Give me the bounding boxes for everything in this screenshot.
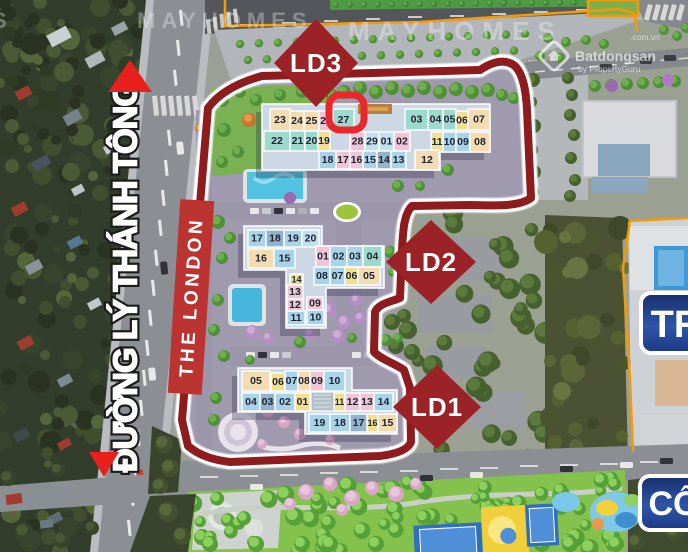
svg-text:03: 03 [411,114,423,126]
svg-text:CỔ: CỔ [649,485,688,523]
svg-text:04: 04 [245,396,257,408]
svg-text:18: 18 [322,154,334,166]
svg-text:LD3: LD3 [290,48,342,78]
svg-text:07: 07 [286,375,298,387]
svg-text:20: 20 [305,233,317,245]
svg-text:03: 03 [262,396,274,408]
svg-text:12: 12 [289,299,301,311]
svg-text:09: 09 [311,375,323,387]
svg-text:17: 17 [353,417,365,429]
svg-text:08: 08 [474,136,486,148]
svg-text:14: 14 [291,275,301,285]
svg-text:by PropertyGuru: by PropertyGuru [578,64,641,74]
svg-text:27: 27 [338,114,350,126]
svg-text:16: 16 [255,253,267,265]
svg-text:14: 14 [378,396,390,408]
svg-text:ĐƯỜNG LÝ THÁNH TÔNG: ĐƯỜNG LÝ THÁNH TÔNG [106,82,144,472]
svg-text:18: 18 [334,417,346,429]
svg-text:28: 28 [352,136,364,148]
svg-text:03: 03 [349,251,361,263]
svg-text:06: 06 [346,270,358,282]
svg-text:02: 02 [333,251,345,263]
svg-text:11: 11 [431,136,442,148]
svg-text:LD2: LD2 [405,247,457,277]
svg-text:20: 20 [306,135,318,147]
svg-text:02: 02 [279,396,291,408]
svg-text:04: 04 [367,251,379,263]
svg-text:19: 19 [318,135,330,147]
svg-text:MAYHOMES: MAYHOMES [348,16,563,46]
svg-text:17: 17 [251,233,263,245]
svg-text:08: 08 [316,270,328,282]
svg-text:LD1: LD1 [411,392,463,422]
svg-text:06: 06 [272,376,284,388]
svg-text:16: 16 [351,154,363,166]
svg-text:08: 08 [298,375,310,387]
svg-text:21: 21 [292,135,304,147]
svg-text:25: 25 [306,115,318,127]
svg-text:13: 13 [361,396,373,408]
svg-text:TR: TR [651,304,688,346]
svg-text:01: 01 [381,136,393,148]
svg-text:12: 12 [421,154,433,166]
svg-text:17: 17 [337,154,349,166]
svg-text:05: 05 [250,375,262,387]
svg-text:07: 07 [332,270,344,282]
svg-text:18: 18 [269,233,281,245]
svg-text:09: 09 [457,136,469,148]
svg-text:15: 15 [364,154,376,166]
svg-text:19: 19 [287,233,299,245]
svg-text:19: 19 [314,417,326,429]
svg-text:14: 14 [378,154,390,166]
svg-text:Batdongsan: Batdongsan [575,48,656,64]
svg-text:.com.vn: .com.vn [630,32,660,42]
svg-text:16: 16 [367,418,377,428]
svg-text:10: 10 [444,136,456,148]
svg-text:07: 07 [473,114,485,126]
svg-text:23: 23 [274,114,286,126]
svg-text:15: 15 [382,417,394,429]
svg-text:01: 01 [297,396,309,408]
svg-text:05: 05 [444,114,456,126]
svg-text:22: 22 [271,135,283,147]
svg-text:04: 04 [430,114,442,126]
svg-text:06: 06 [456,115,468,127]
svg-text:11: 11 [290,312,301,324]
svg-text:13: 13 [393,154,405,166]
svg-text:S: S [0,8,7,33]
svg-text:24: 24 [291,115,303,127]
svg-text:29: 29 [366,136,378,148]
svg-text:01: 01 [317,251,329,263]
svg-text:09: 09 [309,298,321,310]
svg-text:MAYHOMES: MAYHOMES [137,8,313,33]
svg-text:02: 02 [396,136,408,148]
svg-text:11: 11 [335,397,345,407]
svg-text:10: 10 [329,375,341,387]
svg-text:12: 12 [347,396,359,408]
svg-text:05: 05 [363,270,375,282]
svg-text:15: 15 [279,253,291,265]
svg-text:10: 10 [310,312,322,324]
svg-text:13: 13 [289,286,301,298]
